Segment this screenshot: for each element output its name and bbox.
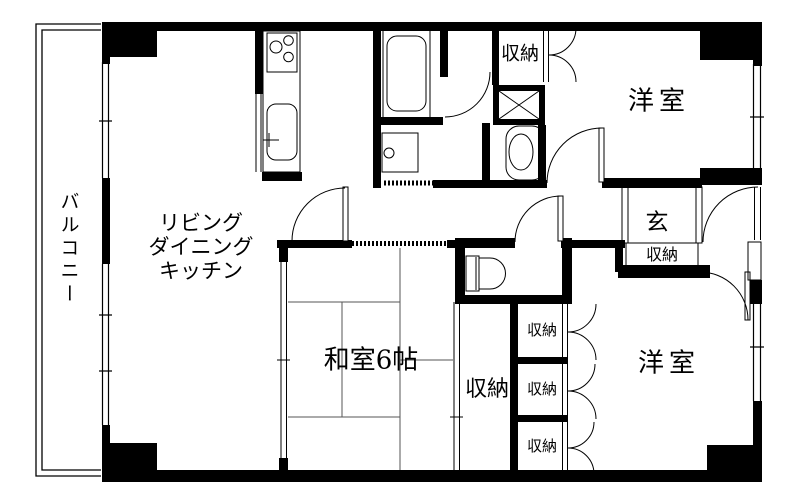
room-label-western-room-top: 洋室 [628, 88, 690, 117]
kitchen-sink [263, 104, 297, 160]
floorplan: バルコニー リビング ダイニング キッチン 和室6帖 洋室 洋室 玄 収納 収納… [0, 0, 800, 501]
threshold-hatch [352, 183, 447, 244]
closet-label-top: 収納 [501, 44, 539, 65]
closet-label-small-2: 収納 [527, 381, 557, 398]
room-label-ldk-line1: リビング [149, 211, 254, 235]
room-label-entrance: 玄 [646, 210, 669, 235]
room-label-japanese-room: 和室6帖 [324, 347, 419, 376]
closet-label-entrance: 収納 [646, 246, 678, 264]
closet-label-small-1: 収納 [527, 322, 557, 339]
floorplan-drawing [0, 0, 800, 501]
closet-label-tall: 収納 [465, 378, 509, 402]
closet-label-small-3: 収納 [527, 438, 557, 455]
washing-machine [382, 133, 418, 172]
door-leaves [343, 128, 761, 320]
room-label-ldk-line2: ダイニング [149, 235, 254, 259]
room-label-western-room-bottom: 洋室 [638, 350, 700, 379]
kitchen-counter [263, 31, 300, 172]
bathtub [383, 30, 430, 118]
pipe-space [493, 85, 545, 125]
stove [267, 33, 297, 72]
room-label-ldk: リビング ダイニング キッチン [149, 211, 254, 283]
room-label-balcony: バルコニー [58, 192, 79, 307]
toilet-lower [466, 256, 505, 291]
room-label-ldk-line3: キッチン [149, 259, 254, 283]
